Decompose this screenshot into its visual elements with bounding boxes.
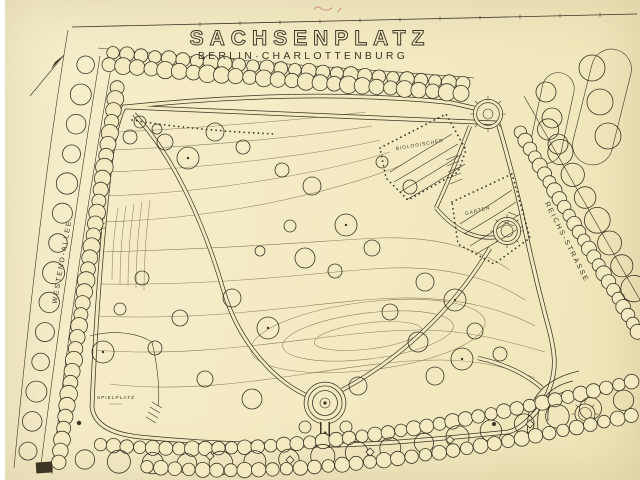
tree-circle (56, 173, 77, 194)
sheet-border (72, 13, 637, 27)
tree-circle (335, 457, 350, 472)
park-paths (134, 114, 542, 396)
tree-circle (237, 440, 252, 455)
tree-circle (610, 411, 625, 426)
tree-circle (107, 47, 119, 59)
tree-circle (406, 421, 421, 436)
tree-circle (75, 450, 94, 469)
tree-circle (598, 415, 611, 428)
tree-circle (586, 384, 600, 398)
tree-circle (106, 438, 121, 453)
tree-circle (66, 114, 86, 134)
street-reichsstrasse (514, 45, 640, 339)
tree-circle (115, 58, 132, 75)
tree-circle (213, 67, 229, 83)
tree-circle (52, 455, 66, 469)
tree-circle (574, 187, 596, 209)
building-block (36, 461, 53, 473)
tree-circle (573, 386, 588, 401)
garden-round-plaza (470, 96, 506, 132)
tree-circle (144, 62, 158, 76)
tree-circle (368, 427, 383, 442)
tree-circle (270, 72, 286, 88)
tree-circle (411, 82, 427, 98)
tree-circle (195, 462, 210, 477)
tree-circle (129, 60, 145, 76)
tree-circle (600, 381, 613, 394)
tree-circle (22, 412, 42, 432)
tree-circle (420, 419, 434, 433)
tree-circle (391, 451, 405, 465)
tree-circle (485, 408, 497, 420)
tree-circle (543, 426, 556, 439)
tree-circle (329, 432, 343, 446)
north-arrow (30, 55, 64, 96)
playground (90, 333, 162, 423)
tree-circle (255, 70, 272, 87)
tree-circle (77, 56, 95, 74)
tree-circle (561, 390, 574, 403)
tree-circle (497, 404, 512, 419)
tree-circle (225, 442, 237, 454)
tree-circle (19, 442, 37, 460)
handwritten-annotation (314, 7, 341, 12)
tree-circle (228, 69, 243, 84)
tree-circle (303, 436, 316, 449)
tree-circle (446, 444, 460, 458)
tree-circle (35, 323, 54, 342)
tree-circle (584, 418, 598, 432)
tree-circle (237, 462, 252, 477)
tree-circle (426, 84, 440, 98)
tree-circle (487, 437, 501, 451)
tree-circle (381, 426, 395, 440)
tree-circle (210, 463, 224, 477)
tree-circle (364, 455, 377, 468)
plan-title: SACHSENPLATZ (190, 27, 431, 50)
plan-subtitle: BERLIN·CHARLOTTENBURG (198, 50, 408, 62)
tree-circle (473, 438, 488, 453)
west-tree-row (26, 50, 88, 466)
tree-circle (514, 431, 529, 446)
park-trees (114, 116, 507, 409)
tree-circle (94, 438, 106, 450)
tree-circle (613, 379, 625, 391)
tree-circle (183, 463, 196, 476)
tree-circle (70, 84, 91, 105)
tree-circle (419, 449, 431, 461)
tree-circle (384, 81, 398, 95)
playground-steps (146, 402, 162, 423)
tree-circle (395, 424, 408, 437)
tree-circle (120, 440, 134, 454)
tree-circle (315, 433, 330, 448)
tree-circle (528, 429, 542, 443)
tree-circle (472, 410, 485, 423)
tree-circle (212, 442, 225, 455)
tree-circle (293, 461, 308, 476)
tree-circle (171, 63, 187, 79)
tree-circle (613, 390, 633, 410)
tree-circle (243, 70, 257, 84)
tree-circle (432, 445, 447, 460)
tree-circle (102, 58, 116, 72)
tree-circle (141, 461, 153, 473)
tree-circle (523, 399, 536, 412)
tree-circle (276, 437, 291, 452)
tree-circle (611, 255, 633, 277)
tree-circle (26, 381, 47, 402)
tree-circle (154, 461, 169, 476)
planting-strip (568, 45, 635, 169)
garden-label-line1: BIOLOGISCHER (395, 138, 444, 152)
tree-circle (32, 353, 50, 371)
tree-circle (580, 398, 602, 420)
tree-circle (107, 450, 130, 473)
tree-circle (280, 463, 292, 475)
tree-circle (433, 417, 446, 430)
tree-circle (510, 402, 524, 416)
playground-label: SPIELPLATZ (97, 395, 135, 401)
tree-circle (168, 462, 182, 476)
tree-circle (396, 81, 413, 98)
tree-circle (376, 453, 391, 468)
tree-circle (145, 440, 160, 455)
tree-circle (624, 409, 638, 423)
tree-circle (453, 85, 469, 101)
garden-bed-lower (452, 174, 530, 264)
tree-circle (264, 439, 277, 452)
tree-circle (290, 437, 304, 451)
tree-circle (285, 73, 299, 87)
tree-circle (354, 78, 370, 94)
site-plan-drawing: SACHSENPLATZ BERLIN·CHARLOTTENBURG WESTE… (0, 0, 640, 480)
garden-label-line2: GARTEN (464, 205, 491, 217)
tree-circle (624, 374, 639, 389)
tree-circle (461, 442, 474, 455)
tree-circle (535, 395, 550, 410)
tree-circle (251, 463, 265, 477)
tree-circle (134, 441, 147, 454)
tree-circle (538, 119, 559, 140)
tree-circle (63, 145, 81, 163)
tree-circle (349, 456, 363, 470)
tree-circle (322, 460, 335, 473)
tree-circle (569, 420, 584, 435)
tree-circle (159, 441, 173, 455)
tree-circle (598, 231, 622, 255)
tree-circle (312, 75, 328, 91)
tree-circle (557, 424, 569, 436)
tree-circle (561, 163, 584, 186)
tree-circle (224, 464, 237, 477)
tree-circle (266, 463, 279, 476)
tree-circle (458, 412, 472, 426)
tree-circle (342, 431, 355, 444)
tree-circle (502, 435, 515, 448)
tree-circle (369, 79, 384, 94)
tree-circle (356, 430, 368, 442)
tree-circle (584, 207, 610, 233)
tree-circle (405, 450, 418, 463)
tree-circle (173, 442, 186, 455)
tree-circle (308, 460, 322, 474)
